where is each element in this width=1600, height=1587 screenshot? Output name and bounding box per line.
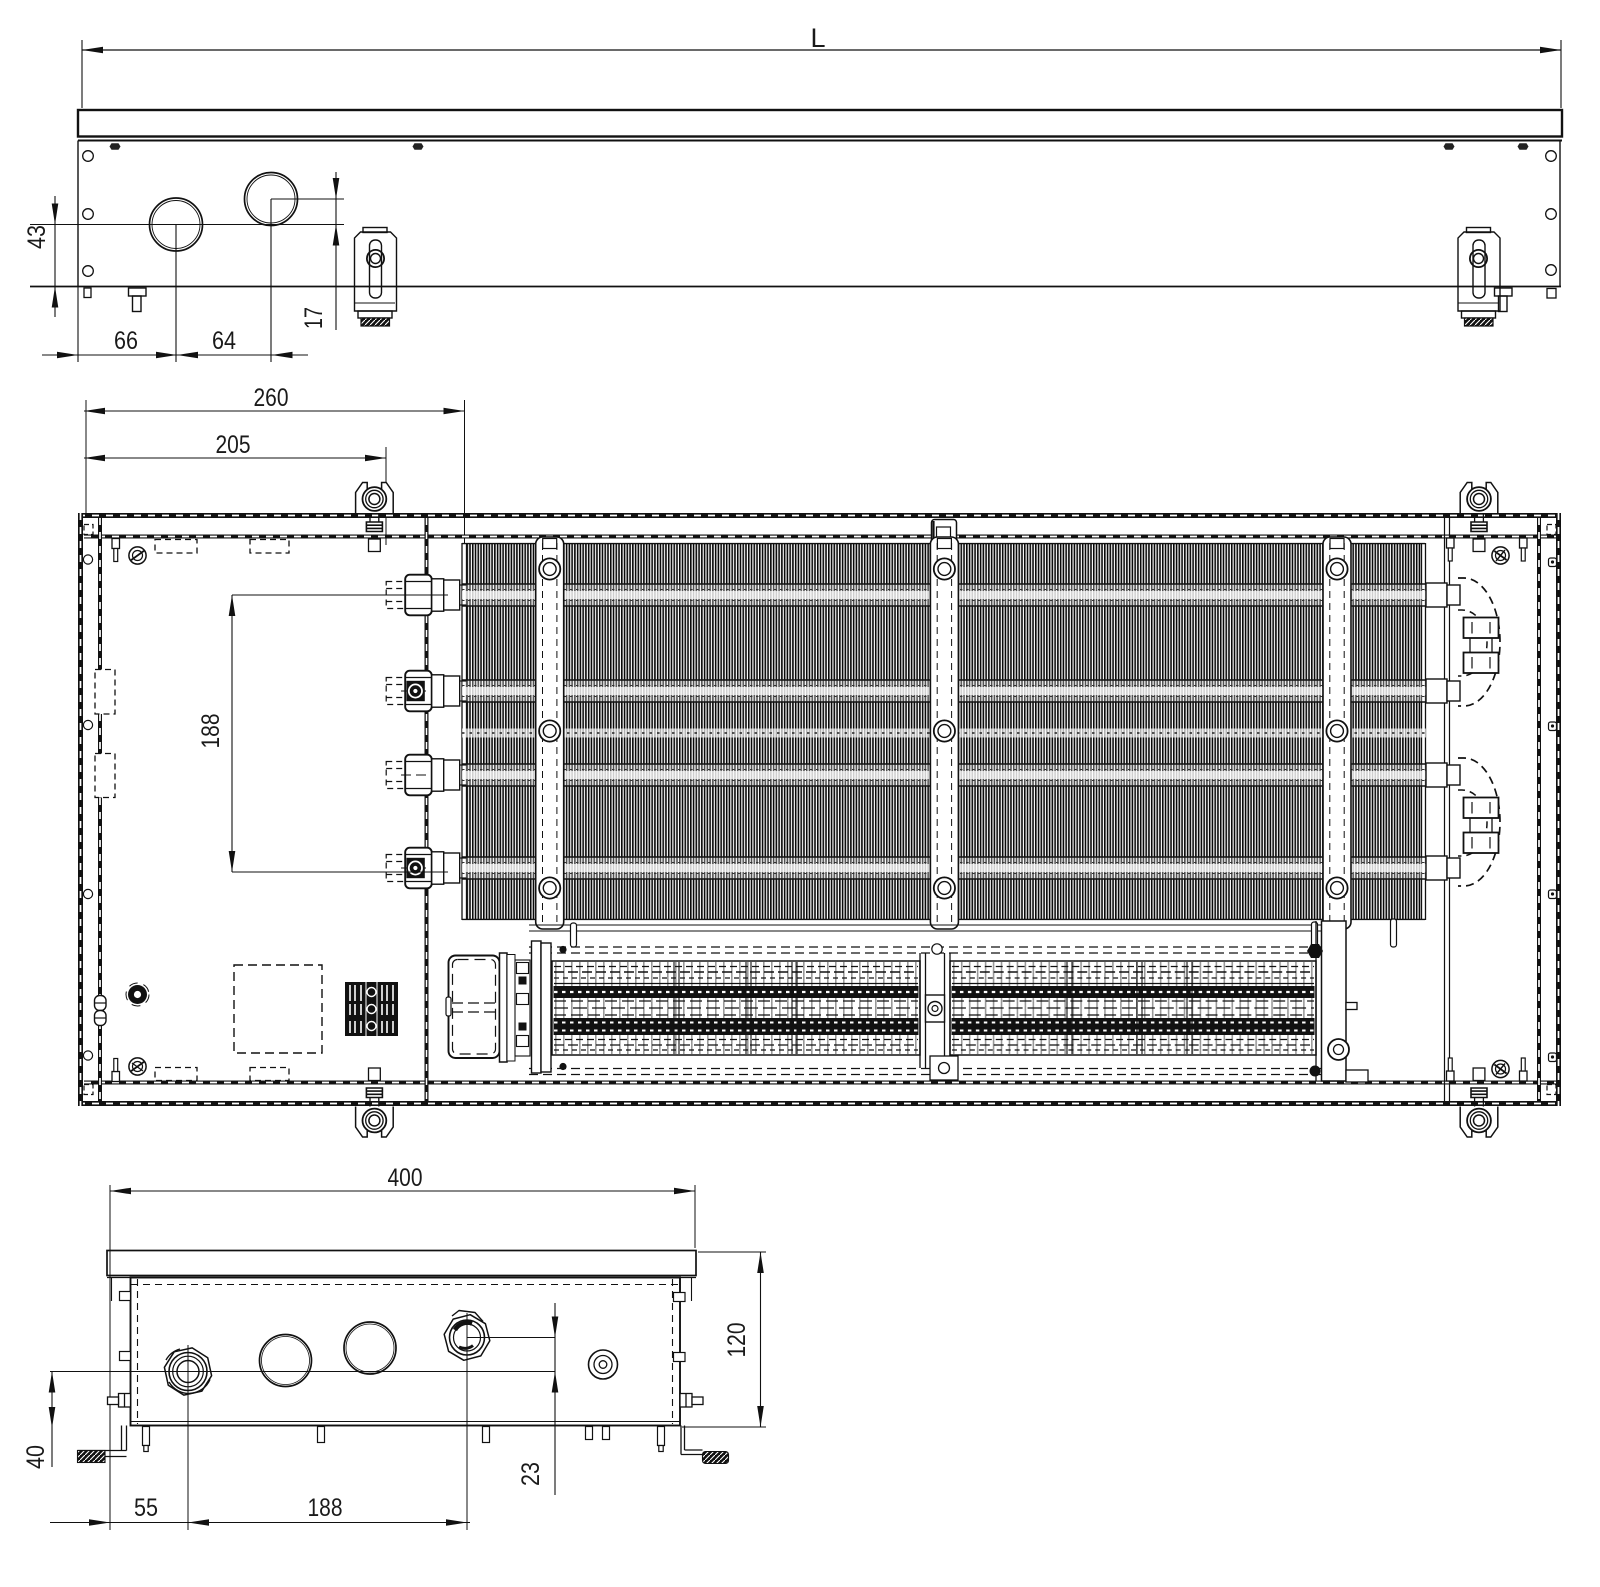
svg-text:205: 205 <box>216 431 251 459</box>
svg-text:L: L <box>810 23 825 53</box>
svg-text:188: 188 <box>308 1494 343 1522</box>
svg-text:55: 55 <box>134 1494 158 1522</box>
svg-text:43: 43 <box>23 225 51 249</box>
svg-text:400: 400 <box>388 1164 423 1192</box>
svg-text:64: 64 <box>212 327 236 355</box>
svg-text:260: 260 <box>254 384 289 412</box>
svg-text:188: 188 <box>197 714 225 749</box>
svg-text:23: 23 <box>517 1462 545 1486</box>
svg-text:120: 120 <box>723 1323 751 1358</box>
svg-text:17: 17 <box>300 307 328 329</box>
svg-text:40: 40 <box>22 1445 50 1469</box>
svg-text:66: 66 <box>114 327 138 355</box>
